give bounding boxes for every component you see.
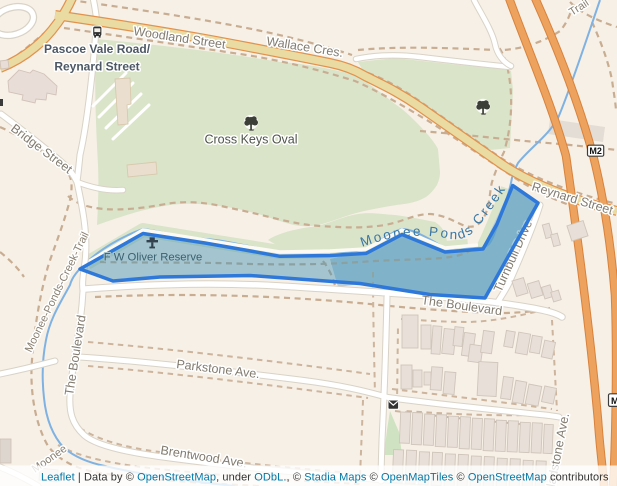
svg-text:Reynard Street: Reynard Street: [54, 60, 139, 74]
svg-text:F W Oliver Reserve: F W Oliver Reserve: [104, 252, 203, 264]
svg-text:Pascoe Vale Road/: Pascoe Vale Road/: [44, 42, 151, 56]
svg-text:M2: M2: [611, 396, 617, 407]
svg-text:M2: M2: [589, 146, 602, 156]
svg-text:Leaflet | Data by © OpenStreet: Leaflet | Data by © OpenStreetMap, under…: [41, 472, 609, 484]
svg-text:Cross Keys Oval: Cross Keys Oval: [204, 133, 297, 147]
